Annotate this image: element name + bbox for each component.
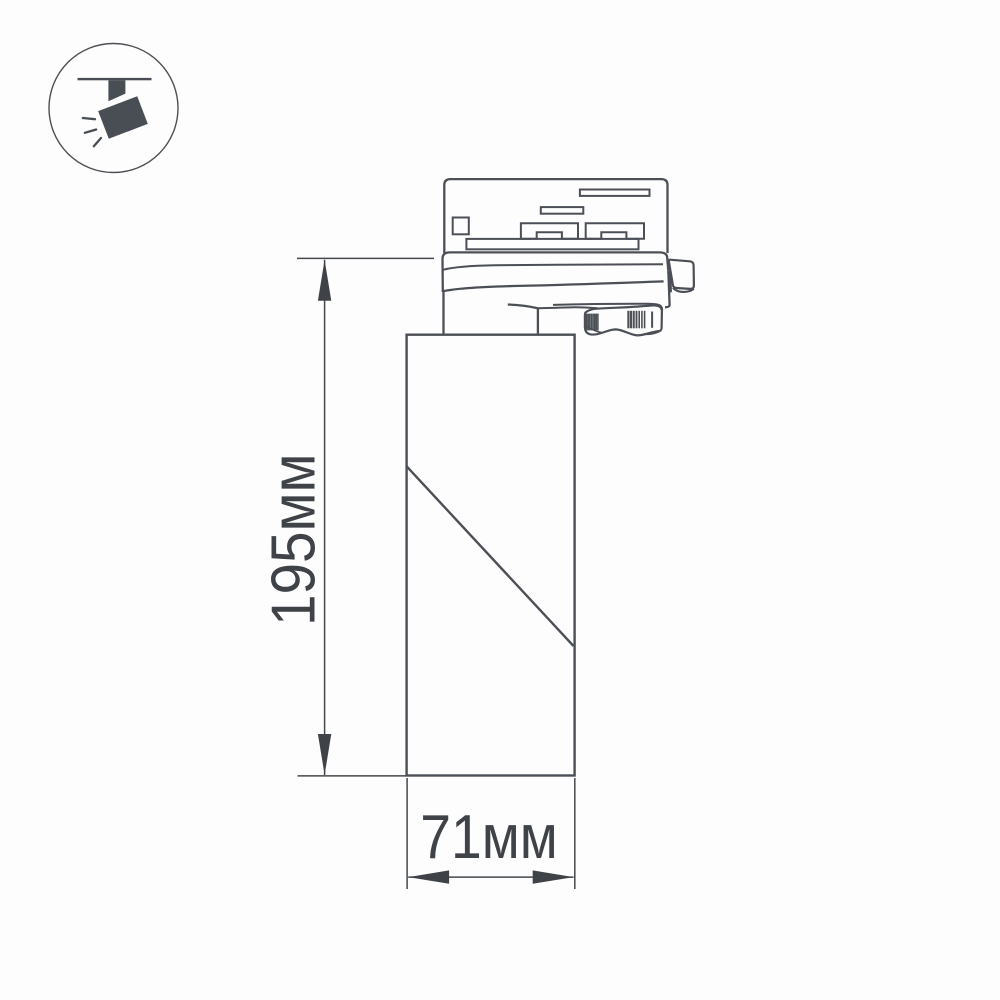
svg-text:195мм: 195мм [260, 454, 329, 627]
svg-text:71мм: 71мм [420, 803, 558, 872]
